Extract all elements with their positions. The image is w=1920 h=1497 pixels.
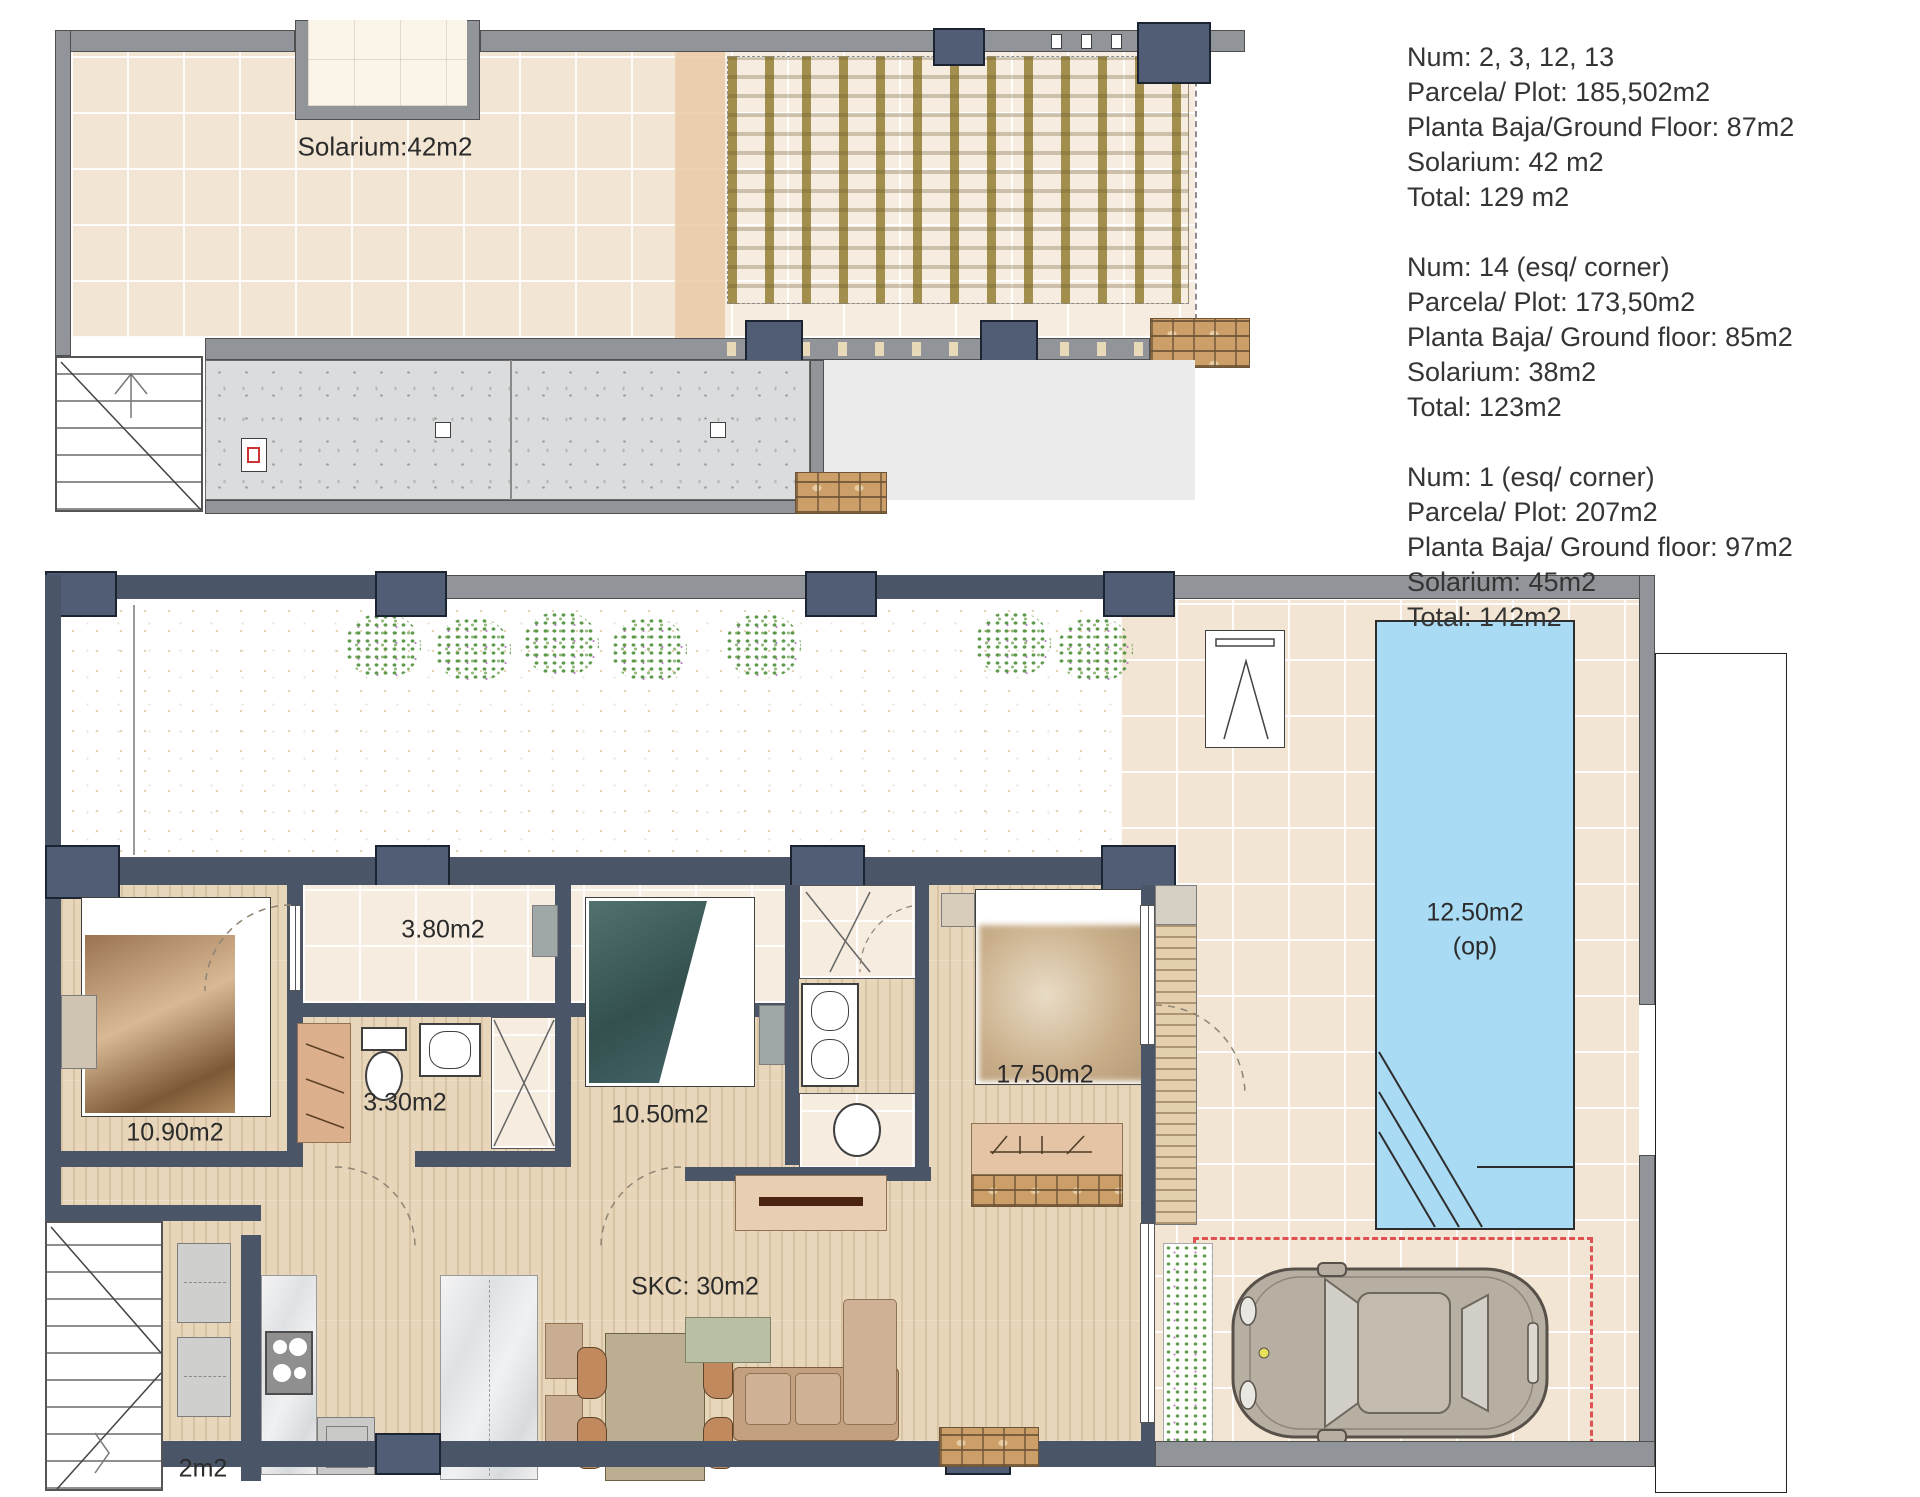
terrace-door-arc	[1155, 1005, 1245, 1095]
coffee-table	[685, 1317, 771, 1363]
roof-wall-under-deck	[205, 500, 810, 514]
tv	[759, 1197, 863, 1206]
bath-cabinet	[297, 1023, 351, 1143]
double-sink	[801, 983, 859, 1087]
info-line: Solarium: 45m2	[1407, 565, 1794, 600]
storage-label: 2m2	[179, 1455, 228, 1484]
roof-deck-joint	[510, 360, 512, 500]
roof-wall-slot	[1051, 34, 1062, 49]
garden-fence-line	[133, 605, 135, 855]
garden-plant	[345, 613, 421, 679]
bed3-nightstand	[941, 893, 975, 927]
gf-column	[375, 571, 447, 617]
roof-skylight-inner	[308, 20, 467, 106]
roof-column	[933, 28, 985, 66]
living-label: SKC: 30m2	[631, 1273, 759, 1302]
hob	[265, 1331, 313, 1395]
roof-plan: Solarium:42m2	[55, 20, 1245, 512]
bed2-nightstand	[759, 1005, 785, 1065]
unit-info-block: Num: 2, 3, 12, 13 Parcela/ Plot: 185,502…	[1407, 40, 1794, 215]
terrace-box	[1155, 885, 1197, 925]
unit-info-block: Num: 1 (esq/ corner) Parcela/ Plot: 207m…	[1407, 460, 1794, 635]
garden-plant	[975, 611, 1051, 677]
wall-living-top2	[415, 1151, 571, 1167]
info-line: Planta Baja/ Ground floor: 85m2	[1407, 320, 1794, 355]
sofa-cushion	[795, 1373, 841, 1425]
info-line: Solarium: 42 m2	[1407, 145, 1794, 180]
roof-wall-left	[55, 30, 71, 356]
roof-wall-slot	[1081, 34, 1092, 49]
info-line: Solarium: 38m2	[1407, 355, 1794, 390]
wall-bathcol-left	[785, 885, 799, 1165]
wall-living-top	[61, 1151, 303, 1167]
gf-column	[45, 845, 120, 899]
wall-bathcol-right	[915, 885, 929, 1167]
sofa-chaise	[843, 1299, 897, 1425]
living-slider	[1140, 1223, 1155, 1423]
roof-property-line	[1195, 50, 1197, 320]
info-line: Planta Baja/Ground Floor: 87m2	[1407, 110, 1794, 145]
porch-label: 3.80m2	[401, 916, 484, 945]
bed3-blanket	[979, 925, 1147, 1081]
info-line: Planta Baja/ Ground floor: 97m2	[1407, 530, 1794, 565]
garden-plant	[1057, 617, 1133, 683]
sidewalk	[1155, 1441, 1655, 1467]
info-line: Total: 142m2	[1407, 600, 1794, 635]
garden-plant	[725, 613, 801, 679]
roof-drain	[710, 422, 726, 438]
roof-brick-planter	[795, 472, 887, 514]
storage-appliance	[177, 1337, 231, 1417]
roof-wall-slot	[1111, 34, 1122, 49]
hall-door-arc	[335, 1167, 415, 1247]
bedroom1-label: 10.90m2	[126, 1119, 223, 1148]
dining-chair	[577, 1347, 607, 1399]
floorplan-sheet: Solarium:42m2	[0, 0, 1920, 1497]
bathroom-label: 3.30m2	[363, 1089, 446, 1118]
bedroom2-label: 10.50m2	[611, 1101, 708, 1130]
roof-column	[1137, 22, 1211, 84]
gf-wall-right-lower	[1639, 1155, 1655, 1445]
info-line: Parcela/ Plot: 185,502m2	[1407, 75, 1794, 110]
storage-appliance	[177, 1243, 231, 1323]
info-line: Parcela/ Plot: 173,50m2	[1407, 285, 1794, 320]
info-line: Num: 14 (esq/ corner)	[1407, 250, 1794, 285]
solarium-label: Solarium:42m2	[298, 132, 473, 163]
car	[1230, 1263, 1550, 1443]
gf-column	[1103, 571, 1175, 617]
unit-info-block: Num: 14 (esq/ corner) Parcela/ Plot: 173…	[1407, 250, 1794, 425]
bedroom3-label: 17.50m2	[996, 1061, 1093, 1090]
bed1-door-arc	[205, 905, 291, 991]
planter-strip	[1163, 1243, 1213, 1443]
info-line: Num: 1 (esq/ corner)	[1407, 460, 1794, 495]
sink-basin	[811, 1039, 849, 1079]
info-line: Parcela/ Plot: 207m2	[1407, 495, 1794, 530]
bbq-brick	[971, 1175, 1123, 1207]
garden-plant	[523, 611, 599, 677]
roof-wall-top-right	[480, 30, 1245, 52]
pool-sublabel: (op)	[1453, 933, 1497, 962]
ground-plan: 3.80m2 3.30m2 10.90m2 10.50m2 17.50m2 12…	[45, 575, 1835, 1497]
bath-wardrobe	[491, 1017, 557, 1149]
info-line: Total: 129 m2	[1407, 180, 1794, 215]
toilet	[361, 1027, 407, 1051]
info-line: Num: 2, 3, 12, 13	[1407, 40, 1794, 75]
facade-brick	[939, 1427, 1039, 1467]
unit-info: Num: 2, 3, 12, 13 Parcela/ Plot: 185,502…	[1407, 40, 1794, 670]
gf-wall-top-mid	[440, 575, 835, 599]
sofa-cushion	[745, 1373, 791, 1425]
roof-drain	[435, 422, 451, 438]
outdoor-shower	[1205, 630, 1285, 748]
roof-stairs	[55, 356, 203, 512]
roof-drain-marker	[247, 447, 260, 463]
gf-column	[805, 571, 877, 617]
gf-column	[375, 1433, 441, 1475]
sink-basin	[811, 991, 849, 1031]
gf-stairs	[45, 1221, 163, 1491]
bed3-slider	[1140, 905, 1155, 1045]
pool-label: 12.50m2	[1426, 899, 1523, 928]
shower-room	[799, 885, 917, 979]
hall-door-arc	[601, 1167, 681, 1247]
neighbor-plot	[1655, 653, 1787, 1493]
bbq-counter	[971, 1123, 1123, 1175]
bed2-nightstand	[532, 905, 558, 957]
bath-sink-basin	[429, 1031, 471, 1069]
pergola-slats	[727, 56, 1189, 304]
garden-plant	[611, 617, 687, 683]
wc-toilet	[833, 1103, 881, 1157]
pergola-shade-band	[675, 50, 725, 338]
garden-plant	[435, 617, 511, 683]
bed1-nightstand	[61, 995, 97, 1069]
info-line: Total: 123m2	[1407, 390, 1794, 425]
gf-front-wall	[45, 857, 1155, 885]
wall-storage-top	[61, 1205, 261, 1221]
roof-wall-top-left	[55, 30, 295, 52]
